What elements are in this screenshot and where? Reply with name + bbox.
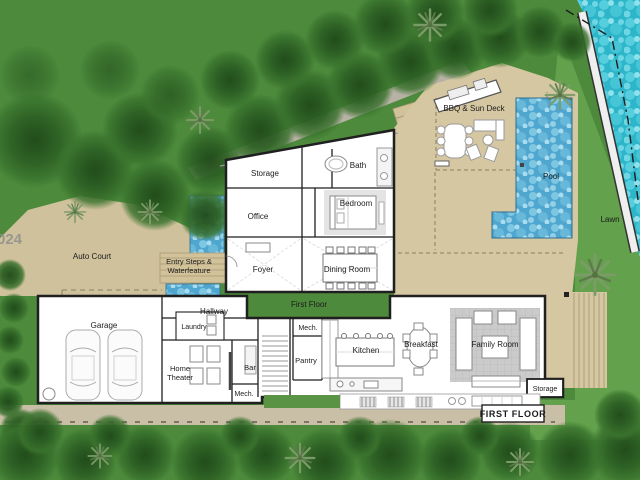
deck-bench: [435, 161, 449, 166]
label-bar: Bar: [244, 363, 256, 372]
label-first-floor: First Floor: [291, 300, 327, 309]
kitchen-counter: [330, 378, 402, 391]
bathtub: [325, 156, 347, 172]
car: [108, 330, 142, 400]
floor-plan-image: Storage Office Bath Bedroom Foyer Dining…: [0, 0, 640, 480]
label-garage: Garage: [91, 321, 118, 330]
terrace-lawn-strip: [264, 395, 340, 408]
sink: [381, 173, 388, 180]
label-foyer: Foyer: [253, 265, 274, 274]
watermark-text: 024: [0, 231, 23, 248]
palm-icon: [286, 444, 315, 473]
label-laundry: Laundry: [181, 324, 207, 331]
label-bedroom: Bedroom: [340, 199, 373, 208]
label-pantry: Pantry: [295, 356, 317, 365]
palm-icon: [88, 444, 111, 467]
label-breakfast: Breakfast: [404, 340, 439, 349]
dryer: [207, 326, 216, 335]
palm-icon: [546, 81, 575, 110]
label-storage-right: Storage: [533, 386, 558, 393]
deck-post: [564, 292, 569, 297]
label-home-theater-2: Theater: [167, 373, 193, 382]
site-plan-canvas: Storage Office Bath Bedroom Foyer Dining…: [0, 0, 640, 480]
palm-icon: [138, 200, 161, 223]
label-kitchen: Kitchen: [353, 346, 380, 355]
label-bbq-sun-deck: BBQ & Sun Deck: [443, 104, 505, 113]
label-entry-2: Waterfeature: [167, 266, 210, 275]
palm-icon: [414, 9, 445, 40]
lawn-steps: [574, 293, 604, 388]
label-pool: Pool: [543, 172, 559, 181]
bed: [324, 190, 386, 235]
label-home-theater-1: Home: [170, 364, 190, 373]
palm-icon: [507, 449, 533, 475]
washer: [207, 315, 216, 324]
palm-icon: [576, 256, 615, 295]
label-lawn: Lawn: [600, 215, 619, 224]
sink: [381, 155, 388, 162]
bath-vanity: [377, 148, 392, 186]
label-storage-upper: Storage: [251, 169, 280, 178]
car: [66, 330, 100, 400]
water-heater: [43, 388, 55, 400]
rear-terrace: [394, 240, 578, 296]
label-family-room: Family Room: [471, 340, 518, 349]
palm-icon: [65, 202, 86, 223]
deck-drain: [520, 163, 524, 167]
foyer-bench: [246, 243, 270, 252]
palm-icon: [187, 107, 213, 133]
label-mech-upper: Mech.: [298, 325, 317, 332]
label-dining-room: Dining Room: [324, 265, 371, 274]
label-auto-court: Auto Court: [73, 252, 112, 261]
plan-title-box: FIRST FLOOR: [480, 405, 547, 422]
label-hallway: Hallway: [200, 307, 228, 316]
label-office: Office: [248, 212, 269, 221]
label-bath: Bath: [350, 161, 366, 170]
label-mech-lower: Mech.: [234, 391, 253, 398]
plan-title-text: FIRST FLOOR: [480, 409, 547, 419]
label-entry-1: Entry Steps &: [166, 257, 212, 266]
